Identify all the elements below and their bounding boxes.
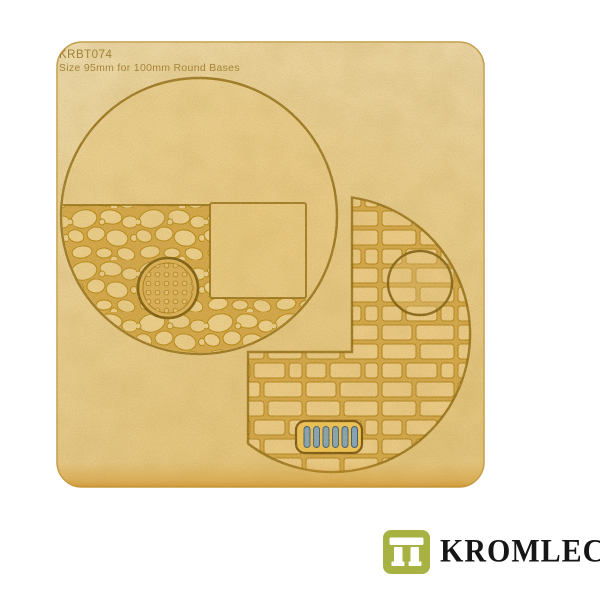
- base-topper-board-svg: KRBT074 Size 95mm for 100mm Round Bases: [0, 0, 600, 600]
- kromlech-wordmark: KROMLECH: [440, 528, 600, 576]
- kromlech-dolmen-icon: [383, 530, 430, 574]
- board-lightgrain-texture: [50, 35, 491, 494]
- board-bottom-edge: [57, 462, 484, 487]
- product-photo: KRBT074 Size 95mm for 100mm Round Bases …: [0, 0, 600, 600]
- kromlech-logo: KROMLECH: [383, 530, 600, 574]
